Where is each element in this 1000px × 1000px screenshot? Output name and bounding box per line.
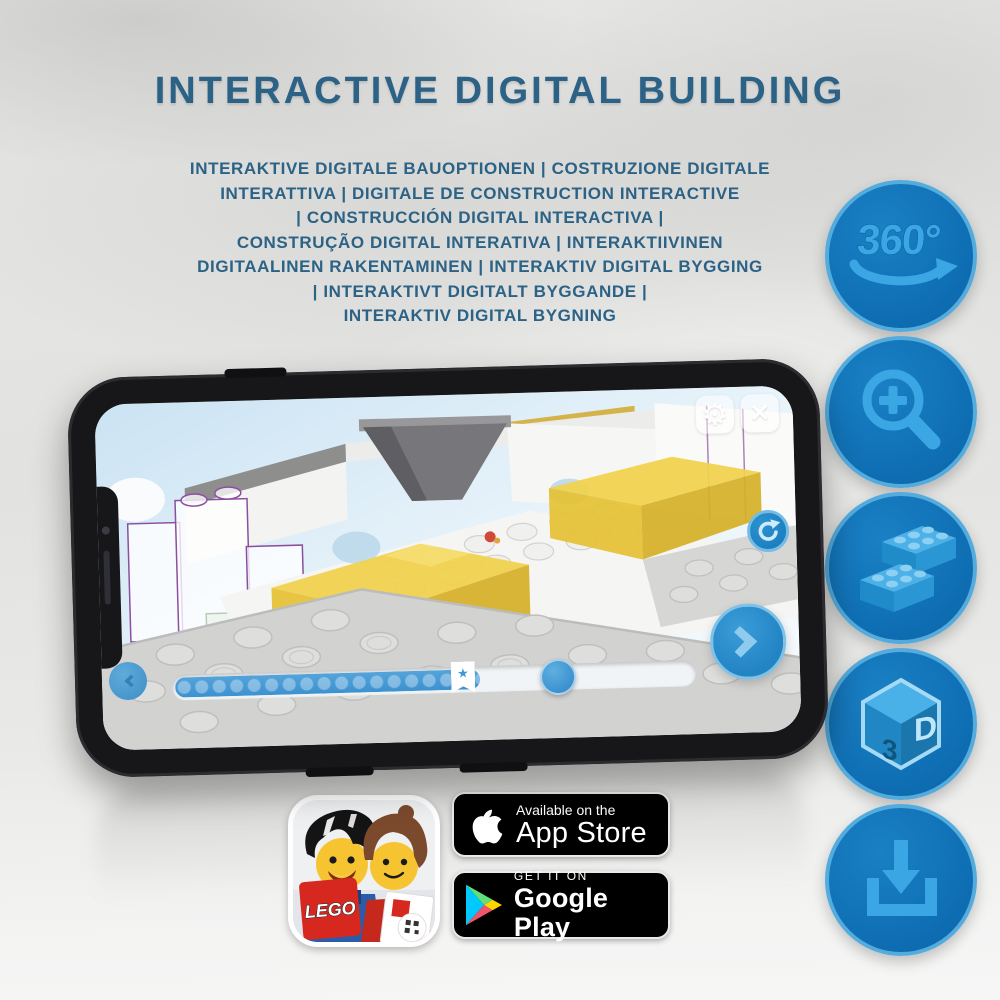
feature-360-rotation: 360° (825, 180, 977, 332)
svg-text:360°: 360° (856, 216, 942, 263)
phone-reflection (94, 765, 808, 935)
svg-text:D: D (914, 708, 937, 749)
bricks-icon (842, 516, 960, 620)
speaker-icon (103, 550, 111, 604)
feature-icon-column: 360° (825, 180, 977, 956)
camera-icon (102, 526, 110, 534)
feature-3d-view: 3 D (825, 648, 977, 800)
phone-volume-button (306, 766, 374, 777)
app-screen: ⚙ ✕ (94, 385, 801, 750)
feature-zoom (825, 336, 977, 488)
app-store-tagline: Available on the (516, 802, 647, 818)
feature-bricks (825, 492, 977, 644)
settings-button[interactable]: ⚙ (695, 395, 734, 434)
zoom-in-icon (851, 362, 951, 462)
feature-download (825, 804, 977, 956)
svg-text:3: 3 (882, 732, 898, 767)
lego-app-artwork: LEGO (293, 800, 435, 942)
phone-side-button (224, 367, 286, 378)
google-play-name: Google Play (514, 884, 656, 942)
smartphone: ⚙ ✕ (67, 358, 830, 779)
gear-icon: ⚙ (701, 397, 729, 433)
app-store-badge[interactable]: Available on the App Store (452, 792, 670, 857)
chevron-right-icon (722, 616, 773, 667)
play-icon (466, 882, 502, 928)
rotate-360-icon: 360° (842, 208, 960, 304)
marketing-page: INTERACTIVE DIGITAL BUILDING INTERAKTIVE… (0, 0, 1000, 1000)
page-title: INTERACTIVE DIGITAL BUILDING (0, 70, 1000, 113)
progress-fill (175, 669, 480, 698)
close-icon: ✕ (749, 398, 771, 429)
close-button[interactable]: ✕ (740, 394, 779, 433)
lego-logo: LEGO (299, 877, 362, 940)
subtitle-languages: INTERAKTIVE DIGITALE BAUOPTIONEN | COSTR… (80, 157, 880, 329)
apple-icon (466, 803, 504, 847)
phone-power-button (459, 762, 527, 773)
download-icon (849, 832, 953, 928)
lower-brick (860, 564, 934, 612)
google-play-tagline: GET IT ON (514, 869, 656, 884)
cube-3d-icon: 3 D (846, 672, 956, 776)
chevron-left-icon (118, 671, 139, 692)
app-store-name: App Store (516, 818, 647, 848)
google-play-badge[interactable]: GET IT ON Google Play (452, 871, 670, 939)
rotate-icon (755, 518, 782, 545)
lego-app-icon[interactable]: LEGO (288, 795, 440, 947)
